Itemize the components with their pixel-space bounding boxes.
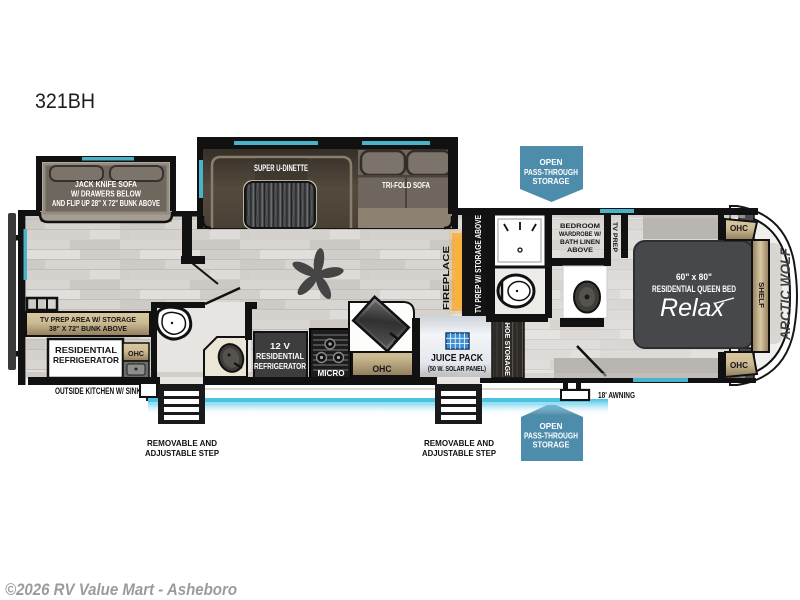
svg-text:OUTSIDE KITCHEN W/ SINK: OUTSIDE KITCHEN W/ SINK (55, 386, 141, 396)
svg-text:W/ DRAWERS BELOW: W/ DRAWERS BELOW (71, 190, 141, 199)
svg-text:STORAGE: STORAGE (533, 176, 570, 186)
svg-text:321BH: 321BH (35, 90, 95, 113)
svg-text:REFRIGERATOR: REFRIGERATOR (53, 355, 119, 365)
svg-text:TRI-FOLD SOFA: TRI-FOLD SOFA (382, 181, 430, 190)
svg-text:12 V: 12 V (270, 342, 291, 351)
svg-text:TV PREP W/ STORAGE ABOVE: TV PREP W/ STORAGE ABOVE (474, 214, 483, 313)
svg-text:60" x 80": 60" x 80" (676, 272, 712, 282)
svg-text:©2026 RV Value Mart - Asheboro: ©2026 RV Value Mart - Asheboro (5, 580, 237, 599)
svg-text:BEDROOM: BEDROOM (560, 223, 600, 230)
svg-text:AND FLIP UP 28" X 72" BUNK ABO: AND FLIP UP 28" X 72" BUNK ABOVE (52, 199, 160, 208)
svg-text:OHC: OHC (730, 361, 748, 370)
svg-text:SHOE STORAGE: SHOE STORAGE (503, 318, 512, 376)
svg-text:STORAGE: STORAGE (533, 440, 570, 450)
svg-text:REMOVABLE AND: REMOVABLE AND (147, 438, 217, 448)
svg-text:ADJUSTABLE STEP: ADJUSTABLE STEP (422, 448, 496, 458)
svg-text:(50 W. SOLAR PANEL): (50 W. SOLAR PANEL) (428, 364, 486, 373)
svg-text:JACK KNIFE SOFA: JACK KNIFE SOFA (75, 180, 137, 189)
svg-text:ADJUSTABLE STEP: ADJUSTABLE STEP (145, 448, 219, 458)
svg-text:ABOVE: ABOVE (567, 247, 594, 254)
svg-text:OHC: OHC (373, 364, 392, 374)
svg-text:OPEN: OPEN (540, 421, 563, 431)
svg-text:REFRIGERATOR: REFRIGERATOR (254, 362, 306, 371)
svg-text:JUICE PACK: JUICE PACK (431, 353, 484, 364)
svg-text:TV PREP AREA W/ STORAGE: TV PREP AREA W/ STORAGE (40, 315, 136, 324)
svg-text:18' AWNING: 18' AWNING (598, 390, 635, 400)
svg-text:REMOVABLE AND: REMOVABLE AND (424, 438, 494, 448)
svg-text:SUPER U-DINETTE: SUPER U-DINETTE (254, 163, 308, 173)
svg-text:38" X 72" BUNK ABOVE: 38" X 72" BUNK ABOVE (49, 324, 127, 333)
svg-text:ARCTIC WOLF: ARCTIC WOLF (777, 248, 793, 341)
svg-text:BATH LINEN: BATH LINEN (560, 239, 600, 246)
svg-text:OHC: OHC (730, 224, 748, 233)
svg-text:OHC: OHC (128, 351, 144, 358)
svg-text:OPEN: OPEN (540, 157, 563, 167)
svg-text:TV PREP: TV PREP (611, 222, 618, 252)
svg-text:FIREPLACE: FIREPLACE (441, 246, 451, 310)
svg-text:RESIDENTIAL: RESIDENTIAL (256, 352, 304, 361)
svg-text:Relax: Relax (660, 294, 725, 322)
svg-text:WARDROBE W/: WARDROBE W/ (559, 231, 601, 238)
svg-text:MICRO: MICRO (318, 368, 345, 378)
svg-text:SHELF: SHELF (757, 282, 764, 309)
svg-text:RESIDENTIAL: RESIDENTIAL (55, 345, 117, 355)
